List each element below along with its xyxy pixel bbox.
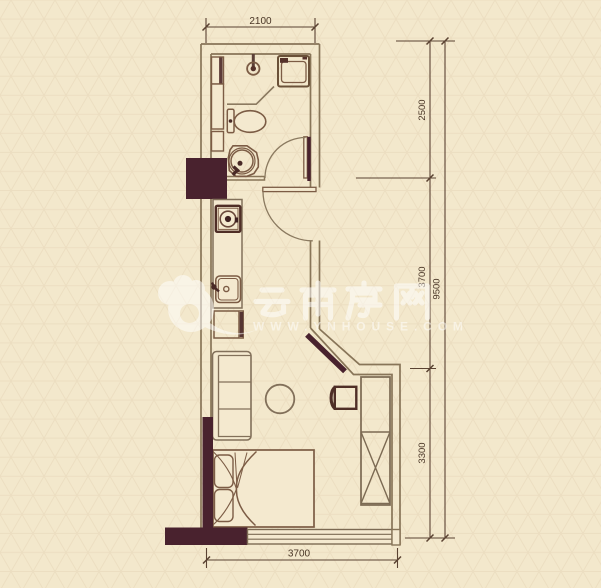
svg-text:3700: 3700 (288, 549, 311, 560)
svg-text:WWW.YNHOUSE.COM: WWW.YNHOUSE.COM (253, 320, 469, 334)
svg-text:3300: 3300 (417, 442, 428, 463)
svg-text:2500: 2500 (417, 99, 428, 120)
svg-text:9500: 9500 (432, 278, 443, 299)
svg-text:2100: 2100 (249, 16, 272, 27)
